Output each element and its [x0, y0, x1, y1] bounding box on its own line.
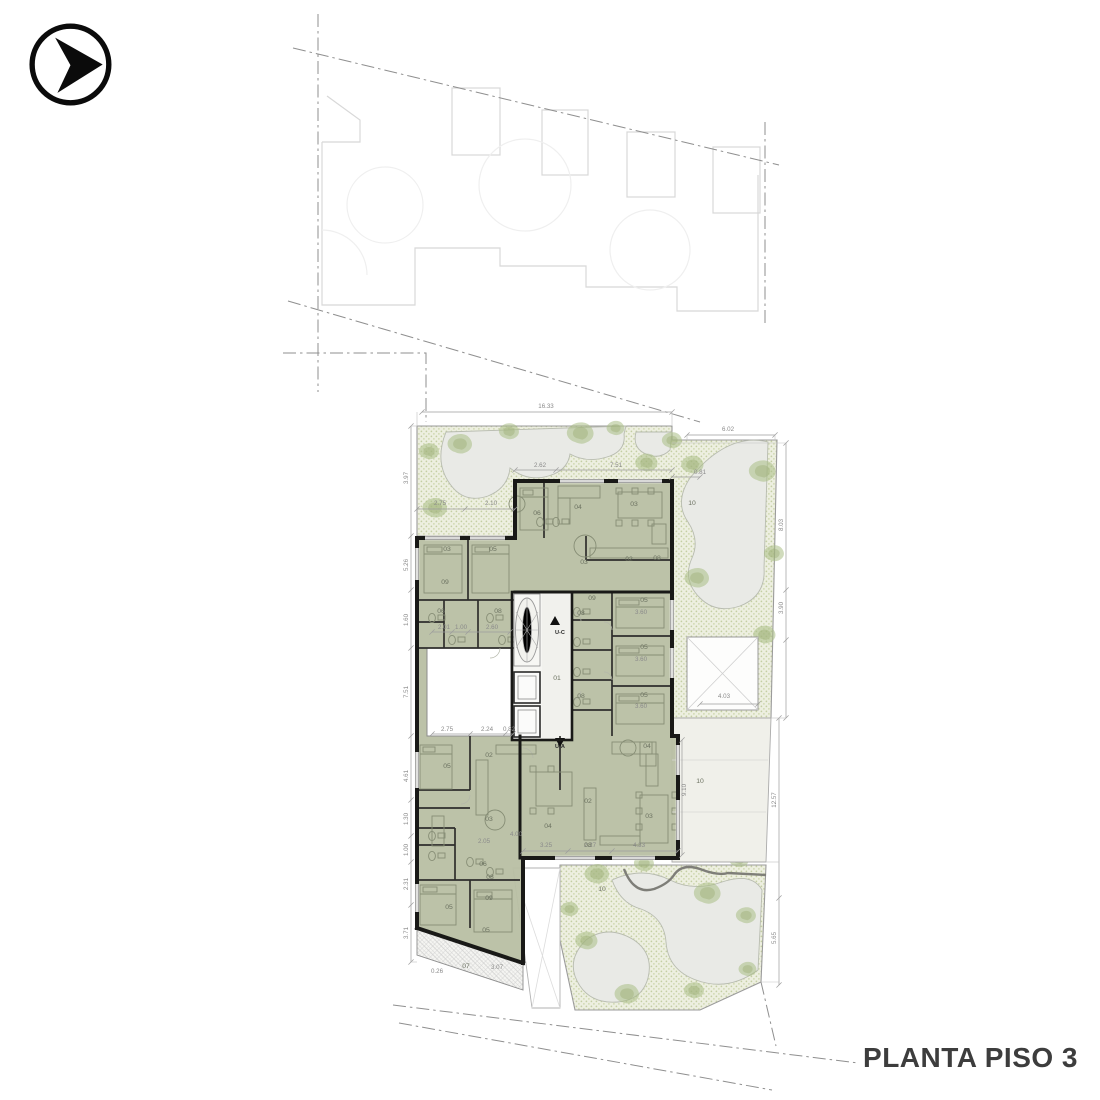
dimension-label: 1.60 [403, 613, 410, 626]
dimension-label: 5.65 [771, 931, 778, 944]
room-label: 08 [577, 693, 585, 700]
room-label: 05 [482, 927, 490, 934]
room-label: 05 [640, 644, 648, 651]
dimension-label: 16.33 [538, 403, 554, 410]
dimension-label: 1.00 [403, 843, 410, 856]
room-label: 10 [696, 778, 704, 785]
dimension-label: 3.07 [491, 964, 504, 971]
dimension-label: 4.00 [510, 831, 523, 838]
room-label: 07 [462, 963, 470, 970]
room-label: 02 [625, 556, 633, 563]
dimension-label: 3.60 [635, 703, 648, 710]
room-label: 05 [489, 546, 497, 553]
dimension-label: 3.97 [403, 471, 410, 484]
dimension-label: 4.03 [718, 693, 731, 700]
room-label: 05 [640, 692, 648, 699]
dimension-label: 0.81 [694, 469, 707, 476]
floorplan-page: 16.336.022.627.510.812.752.103.975.261.6… [0, 0, 1100, 1100]
room-label: 05 [443, 763, 451, 770]
room-label: 09 [588, 595, 596, 602]
room-label: 08 [486, 874, 494, 881]
room-label: 09 [441, 579, 449, 586]
dimension-label: 2.31 [403, 877, 410, 890]
room-label: 03 [630, 501, 638, 508]
room-label: 01 [553, 675, 561, 682]
dimension-label: 3.60 [635, 609, 648, 616]
room-label: 09 [485, 895, 493, 902]
dimension-label: 3.71 [403, 926, 410, 939]
room-label: 08 [494, 608, 502, 615]
floor-title: PLANTA PISO 3 [678, 1042, 1078, 1074]
dimension-label: 1.00 [455, 624, 468, 631]
room-label: 06 [437, 608, 445, 615]
dimension-label: 1.30 [403, 812, 410, 825]
room-label: 04 [544, 823, 552, 830]
dimension-label: 2.24 [481, 726, 494, 733]
dimension-label: 2.01 [438, 624, 451, 631]
floor-plan-drawing: 16.336.022.627.510.812.752.103.975.261.6… [0, 0, 1100, 1100]
room-label: 08 [653, 555, 661, 562]
dimension-label: 2.60 [486, 624, 499, 631]
dimension-label: 9.10 [681, 783, 688, 796]
room-label: 10 [688, 500, 696, 507]
dimension-label: 4.61 [403, 769, 410, 782]
dimension-label: 0.82 [503, 726, 516, 733]
room-label: 08 [577, 610, 585, 617]
room-label: 03 [485, 816, 493, 823]
room-label: 03 [580, 559, 588, 566]
dimension-label: 3.60 [635, 656, 648, 663]
dimension-label: 2.05 [478, 838, 491, 845]
neighbor-lot-outline [322, 88, 760, 311]
room-label: 04 [574, 504, 582, 511]
room-label: 10 [598, 886, 606, 893]
dimension-label: 0.26 [431, 968, 444, 975]
unit-entry-label: U-A [555, 744, 565, 750]
room-label: 03 [443, 546, 451, 553]
room-label: 08 [584, 842, 592, 849]
dimension-label: 2.62 [534, 462, 547, 469]
dimension-label: 2.75 [441, 726, 454, 733]
room-label: 06 [479, 861, 487, 868]
room-label: 04 [643, 743, 651, 750]
room-label: 03 [645, 813, 653, 820]
dimension-label: 7.51 [403, 685, 410, 698]
dimension-label: 8.03 [778, 518, 785, 531]
dimension-label: 2.10 [485, 500, 498, 507]
room-label: 02 [584, 798, 592, 805]
unit-entry-label: U-C [555, 630, 565, 636]
dimension-label: 12.57 [771, 792, 778, 808]
room-label: 05 [445, 904, 453, 911]
dimension-label: 4.33 [633, 842, 646, 849]
dimension-label: 7.51 [610, 462, 623, 469]
room-label: 05 [640, 597, 648, 604]
dimension-label: 5.26 [403, 558, 410, 571]
room-label: 06 [533, 510, 541, 517]
dimension-label: 3.90 [778, 601, 785, 614]
dimension-label: 3.25 [540, 842, 553, 849]
dimension-label: 2.75 [434, 500, 447, 507]
room-label: 02 [485, 752, 493, 759]
dimension-label: 6.02 [722, 426, 735, 433]
